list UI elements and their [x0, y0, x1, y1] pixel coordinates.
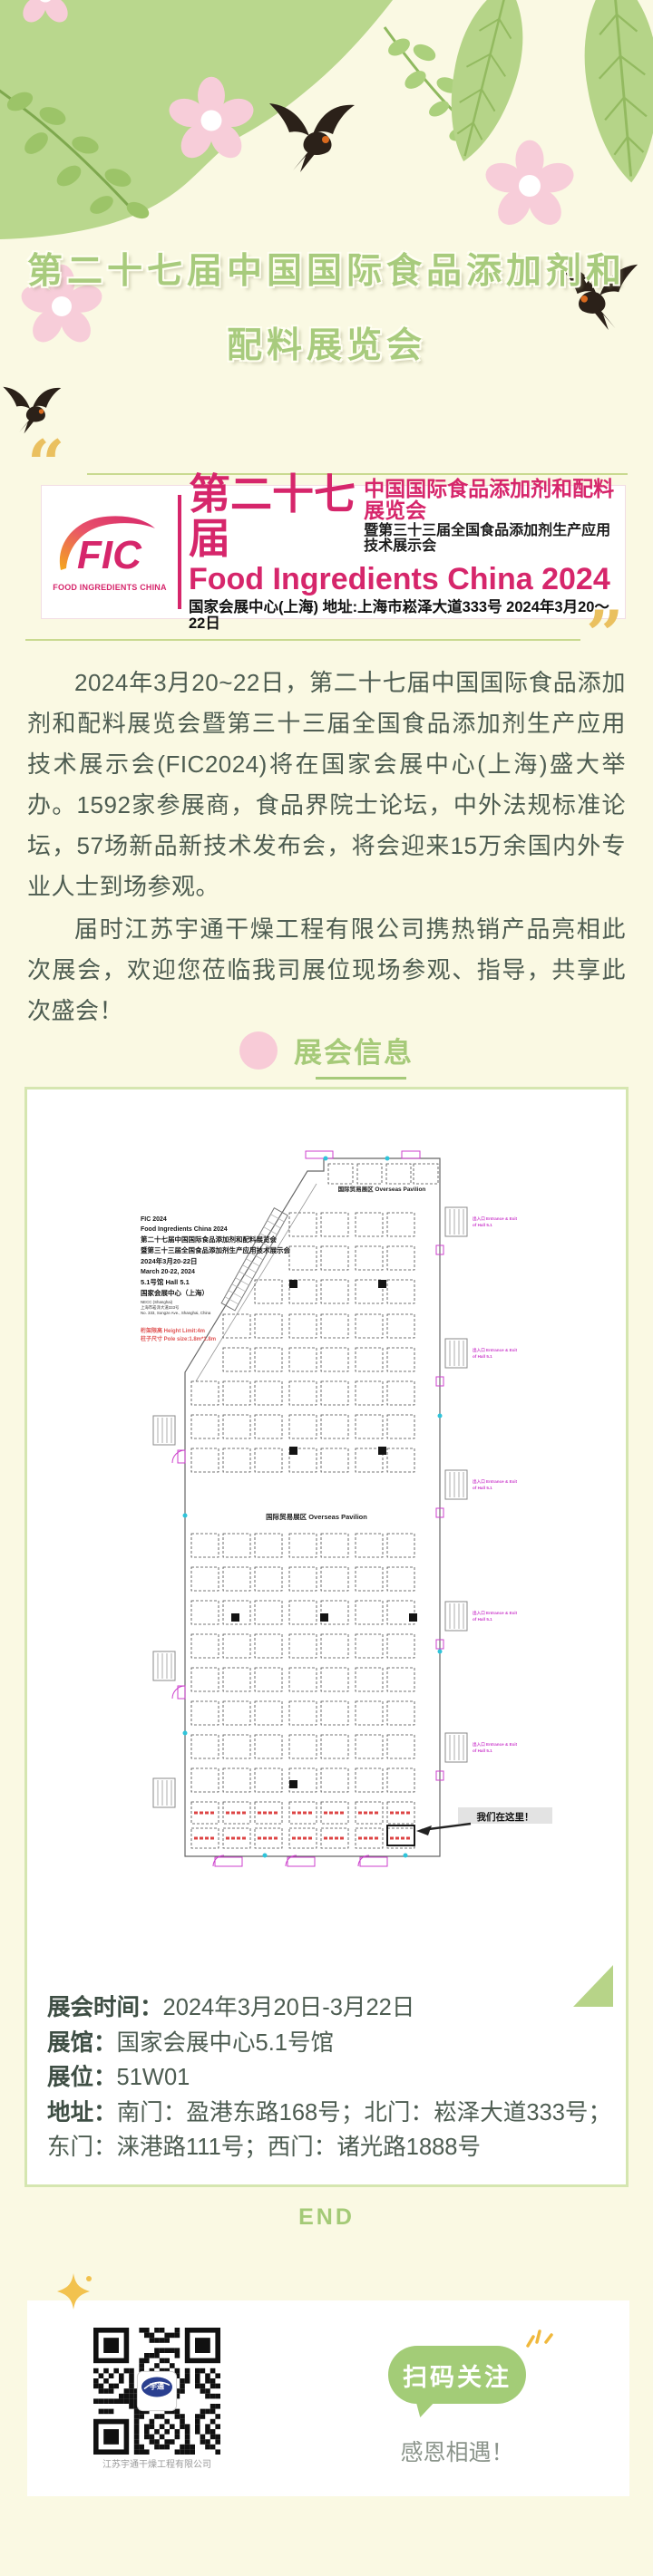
qr-caption: 江苏宇通干燥工程有限公司: [53, 2456, 261, 2470]
banner-cn-title: 中国国际食品添加剂和配料展览会: [364, 478, 625, 522]
plan-decorations: 出入口 Entrance & Exitof Hall 5.1出入口 Entran…: [153, 1151, 517, 1866]
plan-info-line: NECC (Shanghai): [141, 1300, 173, 1304]
booth-grid: [191, 1164, 438, 1848]
banner-en-title: Food Ingredients China 2024: [189, 563, 625, 596]
exhibition-details: 展会时间：2024年3月20日-3月22日 展馆：国家会展中心5.1号馆 展位：…: [47, 1990, 611, 2165]
intro-paragraph-2: 届时江苏宇通干燥工程有限公司携热销产品亮相此次展会，欢迎您莅临我司展位现场参观、…: [27, 909, 626, 1031]
thanks-text: 感恩相遇！: [381, 2435, 533, 2467]
detail-value: 南门：盈港东路168号；北门：崧泽大道333号；东门：涞港路111号；西门：诸光…: [47, 2100, 611, 2161]
page-title-line1: 第二十七届中国国际食品添加剂和: [0, 243, 653, 294]
detail-row-booth: 展位：51W01: [47, 2060, 611, 2096]
entrance-label: of Hall 5.1: [473, 1354, 492, 1359]
plan-info-line: 第二十七届中国国际食品添加剂和配料展览会: [141, 1235, 277, 1244]
plan-height-limit: 桁架限高 Height Limit:4m: [141, 1327, 205, 1334]
section-header: 展会信息: [0, 1030, 653, 1070]
detail-value: 国家会展中心5.1号馆: [117, 2030, 334, 2056]
section-title: 展会信息: [294, 1030, 414, 1070]
entrance-label: 出入口 Entrance & Exit: [473, 1741, 517, 1748]
pavilion-label-mid: 国际贸易展区 Overseas Pavilion: [266, 1512, 367, 1521]
here-annotation-label: 我们在这里！: [477, 1811, 534, 1823]
detail-label: 展会时间：: [47, 1995, 163, 2020]
open-quote-icon: “: [27, 442, 64, 486]
floorplan-map: FIC 2024 Food Ingredients China 2024 第二十…: [79, 1144, 601, 1894]
close-quote-icon: ”: [586, 613, 623, 656]
plan-info-line: 2024年3月20-22日: [141, 1256, 198, 1265]
plan-info-line: 国家会展中心（上海）: [141, 1288, 209, 1297]
big-leaf-2: [577, 0, 653, 186]
banner-divider: [178, 495, 181, 609]
pink-flower-2: [482, 140, 578, 231]
entrance-label: 出入口 Entrance & Exit: [473, 1610, 517, 1616]
qr-code[interactable]: 宇通: [93, 2328, 220, 2455]
entrance-label: of Hall 5.1: [473, 1486, 492, 1490]
banner-edition: 第二十七届: [189, 472, 359, 561]
header-decoration: [0, 0, 653, 471]
entrance-label: 出入口 Entrance & Exit: [473, 1478, 517, 1485]
entrance-label: of Hall 5.1: [473, 1617, 492, 1622]
detail-value: 2024年3月20日-3月22日: [163, 1995, 415, 2020]
hall-outline: [185, 1158, 440, 1856]
entrance-label: of Hall 5.1: [473, 1748, 492, 1753]
fic-banner: FIC FOOD INGREDIENTS CHINA 第二十七届 中国国际食品添…: [41, 485, 626, 619]
pavilion-label-top: 国际贸易展区 Overseas Pavilion: [338, 1185, 426, 1193]
intro-text: 2024年3月20~22日，第二十七届中国国际食品添加剂和配料展览会暨第三十三届…: [27, 663, 626, 1033]
plan-info-line: Food Ingredients China 2024: [141, 1226, 228, 1233]
entrance-label: 出入口 Entrance & Exit: [473, 1347, 517, 1353]
detail-label: 展位：: [47, 2065, 117, 2090]
banner-cn-subtitle: 暨第三十三届全国食品添加剂生产应用技术展示会: [364, 524, 625, 555]
banner-text-block: 第二十七届 中国国际食品添加剂和配料展览会 暨第三十三届全国食品添加剂生产应用技…: [189, 486, 625, 618]
plan-info-line: March 20-22, 2024: [141, 1269, 195, 1275]
entrance-label: of Hall 5.1: [473, 1223, 492, 1227]
plan-info-line: 5.1号馆 Hall 5.1: [141, 1277, 190, 1286]
qr-center-logo: 宇通: [150, 2382, 164, 2391]
intro-paragraph-1: 2024年3月20~22日，第二十七届中国国际食品添加剂和配料展览会暨第三十三届…: [27, 663, 626, 907]
detail-row-address: 地址：南门：盈港东路168号；北门：崧泽大道333号；东门：涞港路111号；西门…: [47, 2096, 611, 2165]
divider-bottom: [25, 639, 580, 641]
plan-info-line: No. 333, Songze Ave., Shanghai, China: [141, 1311, 211, 1315]
floorplan-card: FIC 2024 Food Ingredients China 2024 第二十…: [24, 1087, 629, 2187]
emphasis-dashes-icon: [524, 2319, 555, 2349]
detail-value: 51W01: [117, 2065, 190, 2090]
page-title-line2: 配料展览会: [0, 317, 653, 368]
pink-dot-icon: [239, 1031, 278, 1070]
here-arrowhead: [416, 1825, 432, 1835]
plan-info-block: FIC 2024 Food Ingredients China 2024 第二十…: [141, 1216, 290, 1315]
fic-logo-subtext: FOOD INGREDIENTS CHINA: [53, 583, 166, 592]
banner-venue-line: 国家会展中心(上海) 地址:上海市崧泽大道333号 2024年3月20～22日: [189, 600, 625, 632]
fic-logo-swoosh: FIC: [54, 512, 166, 581]
detail-row-time: 展会时间：2024年3月20日-3月22日: [47, 1990, 611, 2026]
detail-label: 地址：: [47, 2100, 117, 2126]
detail-label: 展馆：: [47, 2030, 117, 2056]
fic-logo: FIC FOOD INGREDIENTS CHINA: [42, 486, 178, 618]
follow-button[interactable]: 扫码关注: [388, 2346, 526, 2404]
swallow-icon-1: [269, 103, 355, 172]
plan-pole-size: 柱子尺寸 Pole size:1.8m*1.8m: [141, 1335, 216, 1342]
detail-row-venue: 展馆：国家会展中心5.1号馆: [47, 2026, 611, 2061]
plan-info-line: FIC 2024: [141, 1216, 167, 1223]
plan-info-line: 上海市崧泽大道333号: [141, 1304, 180, 1311]
plan-info-line: 暨第三十三届全国食品添加剂生产应用技术展示会: [141, 1245, 290, 1254]
sparkle-icon: [54, 2271, 96, 2317]
follow-button-label: 扫码关注: [403, 2358, 512, 2393]
end-marker: END: [0, 2204, 653, 2231]
entrance-label: 出入口 Entrance & Exit: [473, 1215, 517, 1222]
section-underline: [316, 1077, 406, 1080]
fic-logo-text: FIC: [77, 533, 142, 577]
